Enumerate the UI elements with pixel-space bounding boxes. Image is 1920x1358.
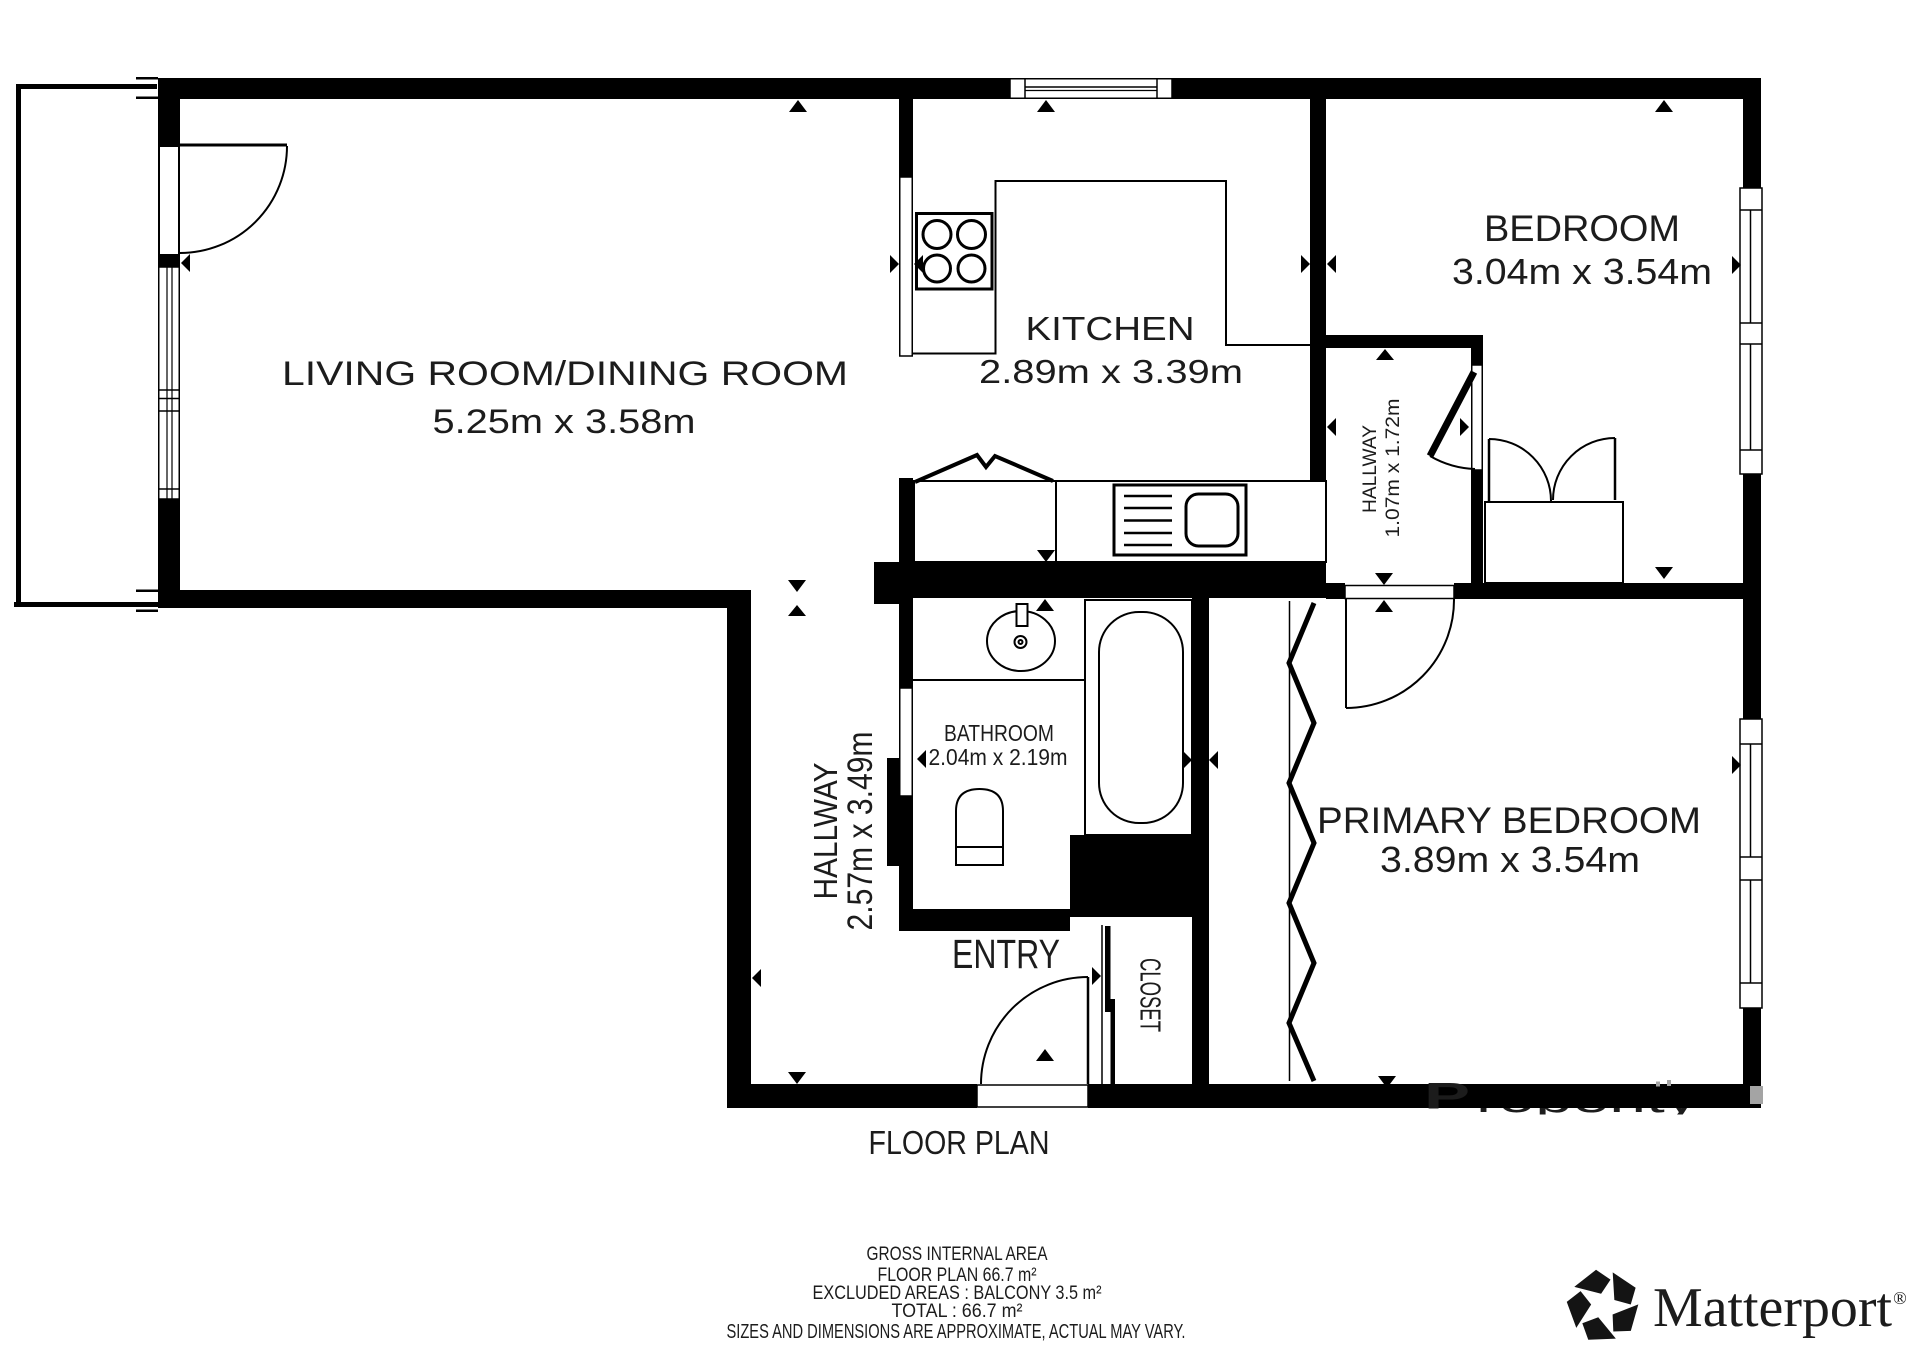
svg-text:1.07m x 1.72m: 1.07m x 1.72m (1383, 399, 1404, 538)
svg-text:BEDROOM: BEDROOM (1484, 208, 1680, 249)
svg-text:3.04m x 3.54m: 3.04m x 3.54m (1452, 251, 1712, 292)
svg-text:P: P (1424, 1076, 1470, 1117)
svg-text:5.25m x 3.58m: 5.25m x 3.58m (433, 403, 696, 441)
svg-text:SIZES AND DIMENSIONS ARE APPRO: SIZES AND DIMENSIONS ARE APPROXIMATE, AC… (727, 1320, 1186, 1343)
svg-text:FLOOR PLAN: FLOOR PLAN (869, 1124, 1050, 1161)
svg-text:GROSS INTERNAL AREA: GROSS INTERNAL AREA (867, 1244, 1048, 1265)
svg-text:HALLWAY: HALLWAY (1360, 425, 1381, 513)
svg-text:HALLWAY: HALLWAY (807, 763, 844, 900)
svg-text:2.89m x 3.39m: 2.89m x 3.39m (979, 353, 1243, 390)
svg-text:Matterport: Matterport (1653, 1277, 1892, 1339)
svg-text:2.57m x 3.49m: 2.57m x 3.49m (840, 732, 880, 931)
svg-text:CLOSET: CLOSET (1134, 958, 1166, 1032)
svg-text:®: ® (1893, 1288, 1907, 1308)
svg-text:2.04m x 2.19m: 2.04m x 2.19m (929, 744, 1068, 770)
svg-text:KITCHEN: KITCHEN (1026, 310, 1195, 347)
svg-text:3.89m x 3.54m: 3.89m x 3.54m (1380, 839, 1640, 880)
svg-text:BATHROOM: BATHROOM (944, 720, 1054, 746)
svg-text:TOTAL : 66.7 m²: TOTAL : 66.7 m² (892, 1301, 1023, 1322)
svg-text:ENTRY: ENTRY (952, 931, 1060, 977)
svg-text:PRIMARY BEDROOM: PRIMARY BEDROOM (1317, 800, 1701, 841)
svg-text:LIVING ROOM/DINING ROOM: LIVING ROOM/DINING ROOM (282, 355, 848, 393)
